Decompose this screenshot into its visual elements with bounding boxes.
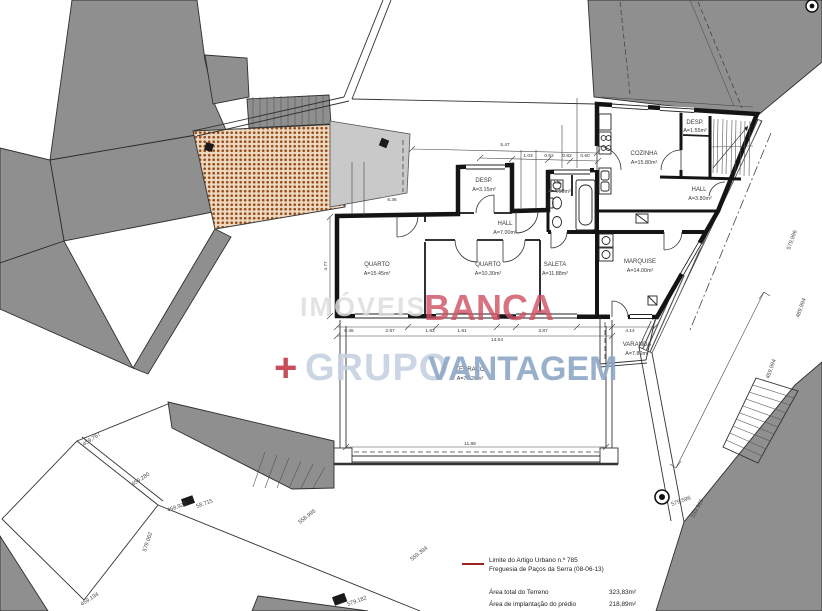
room-area-is: A=4.50m²: [547, 189, 571, 195]
dim-label: 0.62: [544, 153, 554, 159]
exterior-steps-lower: [168, 402, 334, 489]
room-name-desp: DESP.: [475, 178, 493, 184]
benchmark-dot-icon: [659, 494, 665, 500]
dim-label: 6.36: [387, 197, 397, 203]
building-mass: [133, 229, 231, 374]
survey-label: 579.182: [347, 595, 368, 608]
room-name-quarto-1: QUARTO: [364, 262, 390, 268]
survey-label: 458.927: [167, 501, 188, 514]
survey-label: 459.280: [131, 472, 151, 488]
room-area-quarto-1: A=15.45m²: [364, 271, 391, 277]
dim-label: 4.77: [323, 261, 329, 271]
dim-label: 4.14: [625, 328, 635, 334]
room-area-cozinha: A=15.80m²: [631, 160, 658, 166]
room-area-quarto-2: A=10.30m²: [475, 271, 502, 277]
survey-label: 558.995: [298, 508, 318, 525]
legend: Limite do Artigo Urbano n.º 785 Freguesi…: [462, 557, 636, 608]
survey-marker-icon: [332, 593, 347, 606]
terrace: [334, 320, 618, 464]
building-mass: [0, 241, 133, 368]
floor-plan-drawing: 5.47 1.03 0.62 0.82 0.60 6.36 4.77 14.04…: [0, 0, 822, 611]
dim-label: 1.03: [523, 153, 533, 159]
room-area-desp-2: A=1.55m²: [683, 128, 707, 134]
dim-label: 14.04: [491, 337, 503, 343]
dim-label: 1.83: [425, 328, 435, 334]
legend-boundary-label-2: Freguesia de Paços da Serra (08-06-13): [489, 566, 604, 573]
room-name-is: I.S.: [553, 180, 562, 186]
watermark-banca: BANCA: [424, 287, 554, 328]
room-name-hall: HALL: [497, 221, 513, 227]
room-area-varanda: A=7.80m²: [625, 351, 649, 357]
building-mass: [656, 362, 822, 611]
legend-area-impl-value: 218,89m²: [609, 601, 636, 608]
legend-area-total-label: Área total do Terreno: [489, 587, 549, 596]
room-area-hall: A=7.00m²: [493, 230, 517, 236]
room-name-cozinha: COZINHA: [631, 151, 658, 157]
benchmark-dot-icon: [810, 4, 815, 9]
room-area-desp: A=3.15m²: [472, 187, 496, 193]
room-name-saleta: SALETA: [544, 262, 567, 268]
watermark-plus-icon: +: [274, 346, 297, 390]
survey-label: 579.062: [142, 532, 154, 553]
survey-label: 579.996: [786, 230, 799, 251]
survey-label: 459.194: [80, 592, 100, 608]
tiled-roof-hatch: [193, 124, 345, 229]
dim-label: 0.82: [562, 153, 572, 159]
room-area-marquise: A=14.00m²: [627, 268, 654, 274]
dim-label: 0.60: [580, 153, 590, 159]
legend-area-impl-label: Área de implantação do prédio: [489, 599, 576, 608]
room-name-marquise: MARQUISE: [624, 259, 656, 265]
room-name-quarto-2: QUARTO: [475, 262, 501, 268]
dim-label: 0.45: [344, 328, 354, 334]
dim-label: 5.47: [500, 142, 510, 148]
exterior-steps-top: [247, 95, 331, 128]
legend-area-total-value: 323,83m²: [609, 589, 636, 596]
survey-label: 489.994: [795, 298, 808, 319]
survey-label: 459.994: [765, 359, 778, 380]
survey-label: 58.715: [196, 498, 214, 509]
building-mass: [205, 55, 249, 104]
legend-boundary-label-1: Limite do Artigo Urbano n.º 785: [489, 557, 578, 564]
dim-label: 3.87: [538, 328, 548, 334]
room-name-hall-2: HALL: [691, 187, 707, 193]
dim-label: 1.81: [457, 328, 467, 334]
watermark-imoveis: IMÓVEIS: [300, 291, 427, 322]
dim-label: 2.87: [385, 328, 395, 334]
survey-label: 559.394: [410, 545, 430, 562]
floor-plan-svg: 5.47 1.03 0.62 0.82 0.60 6.36 4.77 14.04…: [0, 0, 822, 611]
building-mass: [0, 536, 48, 611]
room-name-varanda: VARANDA: [623, 342, 652, 348]
room-area-saleta: A=11.88m²: [542, 271, 568, 277]
watermark-vantagem: VANTAGEM: [428, 350, 618, 388]
room-name-desp-2: DESP.: [686, 120, 704, 126]
dim-label: 11.88: [464, 441, 476, 447]
room-area-hall-2: A=3.80m²: [688, 196, 712, 202]
